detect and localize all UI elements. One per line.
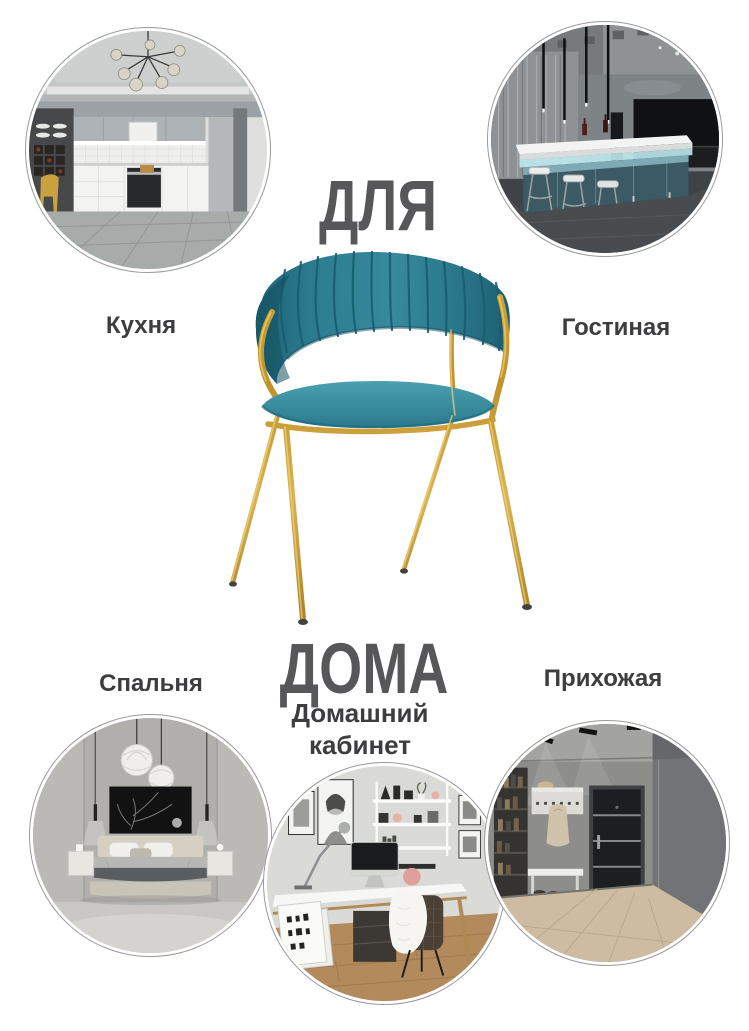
title-dlya: ДЛЯ bbox=[319, 171, 437, 242]
room-label-living-room: Гостиная bbox=[562, 314, 670, 343]
bedroom-photo-circle bbox=[29, 714, 272, 957]
kitchen-photo bbox=[29, 31, 267, 269]
living-room-scene-illustration bbox=[491, 25, 719, 253]
hallway-scene-illustration bbox=[488, 724, 726, 962]
chair-seat bbox=[262, 381, 494, 428]
coat-icon bbox=[547, 804, 570, 847]
kitchen-scene-illustration bbox=[29, 31, 267, 269]
hallway-photo-circle bbox=[484, 720, 730, 966]
title-doma: ДОМА bbox=[280, 634, 449, 705]
room-label-bedroom: Спальня bbox=[99, 670, 203, 699]
room-label-kitchen: Кухня bbox=[106, 312, 176, 341]
bedroom-scene-illustration bbox=[33, 718, 268, 953]
bedroom-photo bbox=[33, 718, 268, 953]
home-office-scene-illustration bbox=[267, 766, 502, 1001]
living-room-photo-circle bbox=[487, 21, 723, 257]
chair-backrest bbox=[256, 252, 510, 384]
room-label-hallway: Прихожая bbox=[544, 665, 662, 694]
product-infographic: Кухня Гостиная ДЛЯ ДОМА bbox=[0, 0, 749, 1031]
kitchen-photo-circle bbox=[25, 27, 271, 273]
home-office-photo-circle bbox=[263, 762, 506, 1005]
room-label-home-office: Домашний кабинет bbox=[282, 697, 438, 761]
home-office-photo bbox=[267, 766, 502, 1001]
living-room-photo bbox=[491, 25, 719, 253]
hallway-photo bbox=[488, 724, 726, 962]
